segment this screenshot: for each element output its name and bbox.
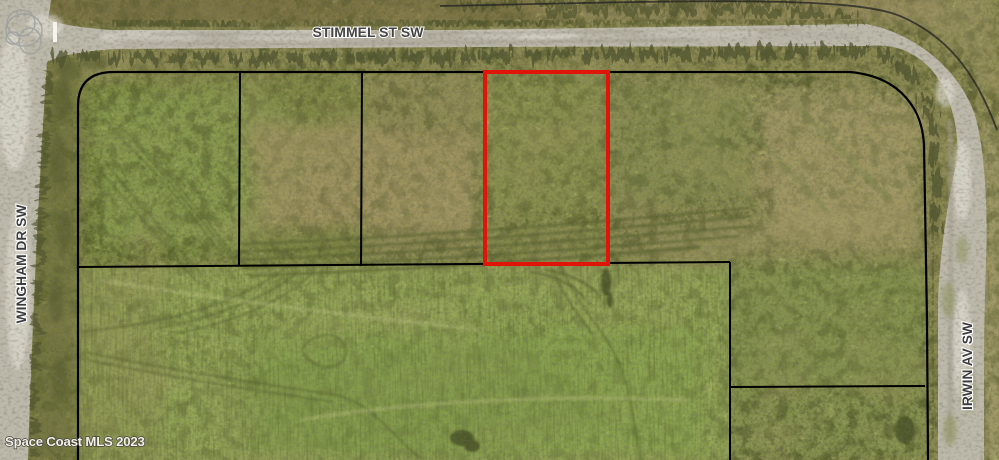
svg-text:IRWIN AV SW: IRWIN AV SW [960,321,975,410]
svg-text:WINGHAM DR SW: WINGHAM DR SW [14,204,29,324]
svg-text:STIMMEL ST SW: STIMMEL ST SW [313,24,425,40]
svg-text:Space Coast MLS 2023: Space Coast MLS 2023 [5,434,145,449]
